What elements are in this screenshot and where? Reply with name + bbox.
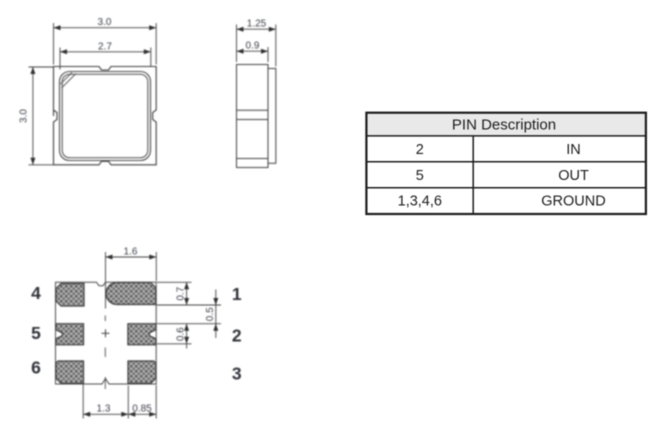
- svg-text:2: 2: [416, 142, 424, 158]
- svg-text:OUT: OUT: [558, 168, 589, 184]
- svg-text:1,3,4,6: 1,3,4,6: [398, 193, 442, 209]
- svg-text:IN: IN: [566, 142, 581, 158]
- svg-text:PIN Description: PIN Description: [452, 116, 556, 133]
- svg-text:GROUND: GROUND: [541, 193, 605, 209]
- svg-text:5: 5: [416, 168, 424, 184]
